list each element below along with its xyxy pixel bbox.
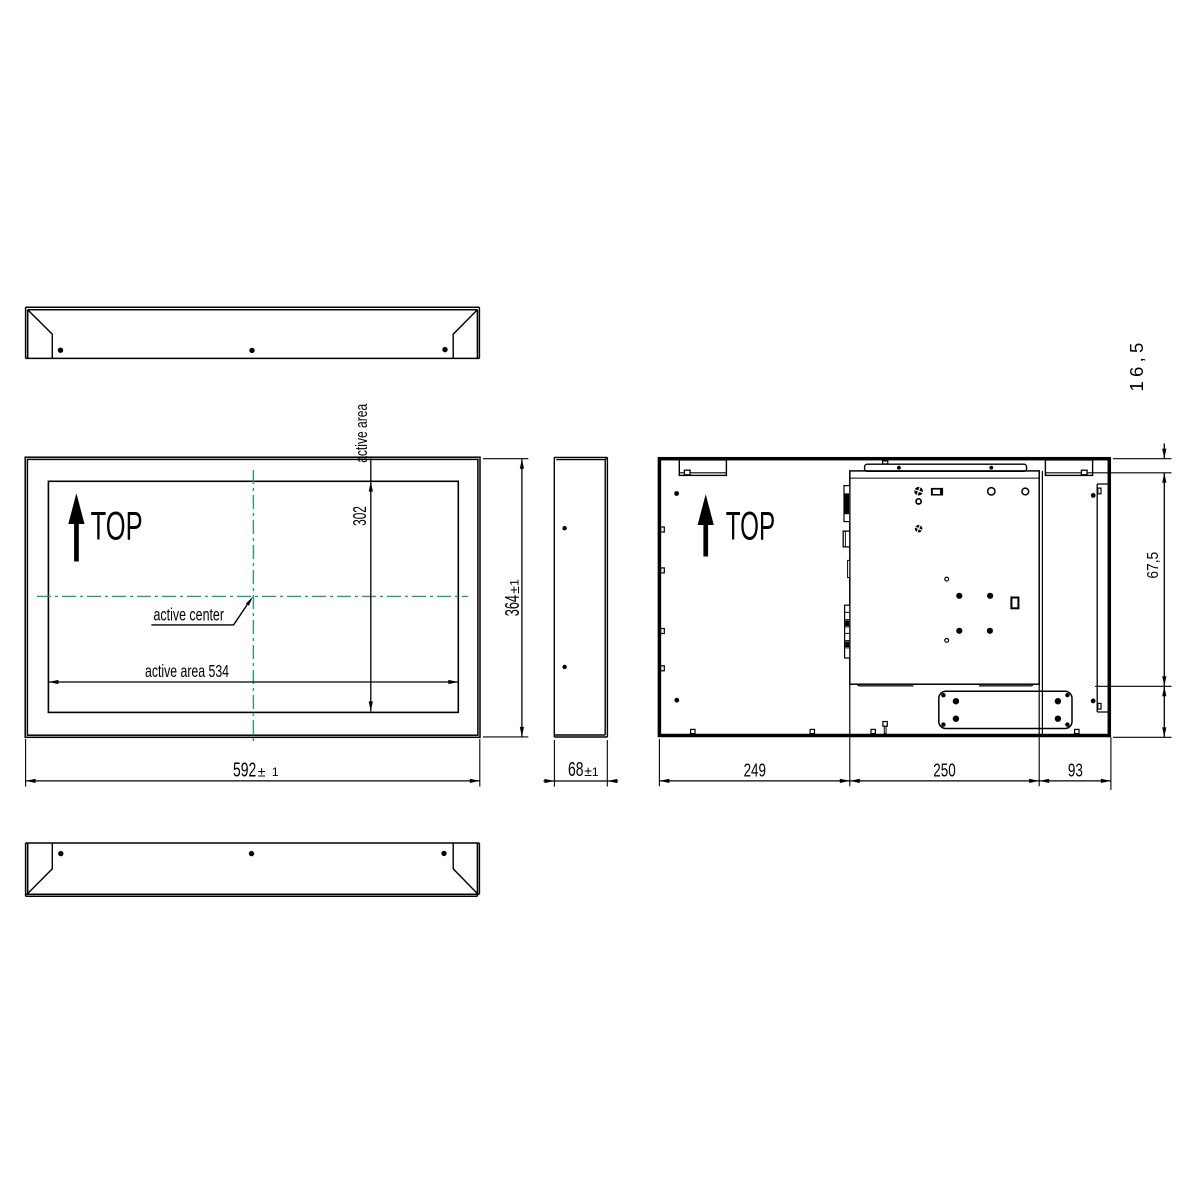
svg-text:16,5: 16,5 (1126, 339, 1147, 392)
svg-text:249: 249 (744, 759, 766, 780)
svg-text:302: 302 (349, 506, 370, 526)
svg-text:1: 1 (508, 579, 522, 586)
svg-text:active area 534: active area 534 (145, 661, 229, 681)
svg-text:592: 592 (233, 759, 256, 781)
svg-text:active area: active area (352, 403, 371, 462)
svg-text:active center: active center (154, 605, 225, 625)
svg-text:364: 364 (502, 595, 524, 616)
svg-text:68: 68 (568, 759, 584, 781)
svg-text:TOP: TOP (726, 504, 775, 549)
svg-text:TOP: TOP (91, 503, 143, 548)
svg-text:±: ± (258, 763, 266, 779)
svg-text:250: 250 (933, 759, 955, 780)
svg-text:67,5: 67,5 (1145, 552, 1162, 579)
svg-text:93: 93 (1068, 759, 1083, 780)
svg-text:1: 1 (272, 765, 279, 779)
svg-text:1: 1 (592, 765, 599, 779)
